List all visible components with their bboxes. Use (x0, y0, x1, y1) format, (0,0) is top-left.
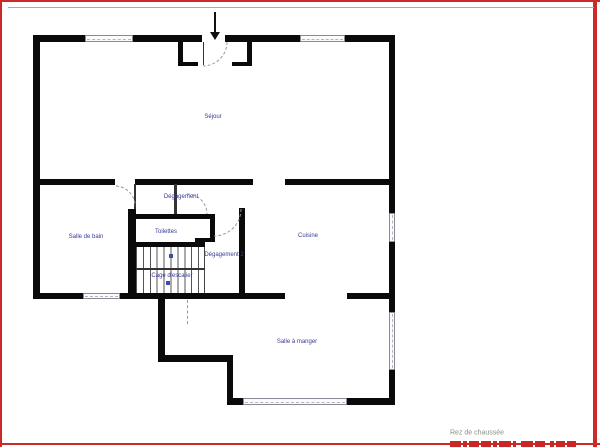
room-label-cuisine: Cuisine (298, 233, 318, 239)
door-swing-arcs (0, 0, 600, 447)
floor-plan: Séjour Dégagement Salle de bain Toilette… (0, 0, 600, 447)
room-label-degagement2: Dégagement 2 (204, 252, 243, 258)
room-label-salle-a-manger: Salle à manger (277, 339, 317, 345)
room-label-degagement: Dégagement (164, 194, 198, 200)
room-label-toilettes: Toilettes (155, 229, 177, 235)
floor-label: Rez de chaussée (450, 430, 504, 437)
kitchen-door-arc (214, 209, 241, 236)
entrance-door-arc (203, 42, 227, 66)
room-label-salle-de-bain: Salle de bain (69, 234, 104, 240)
bathroom-door-arc (116, 186, 135, 206)
clipped-watermark (450, 441, 597, 447)
room-label-cage-escalier: Cage d'escalier (151, 273, 192, 279)
room-label-sejour: Séjour (204, 114, 221, 120)
